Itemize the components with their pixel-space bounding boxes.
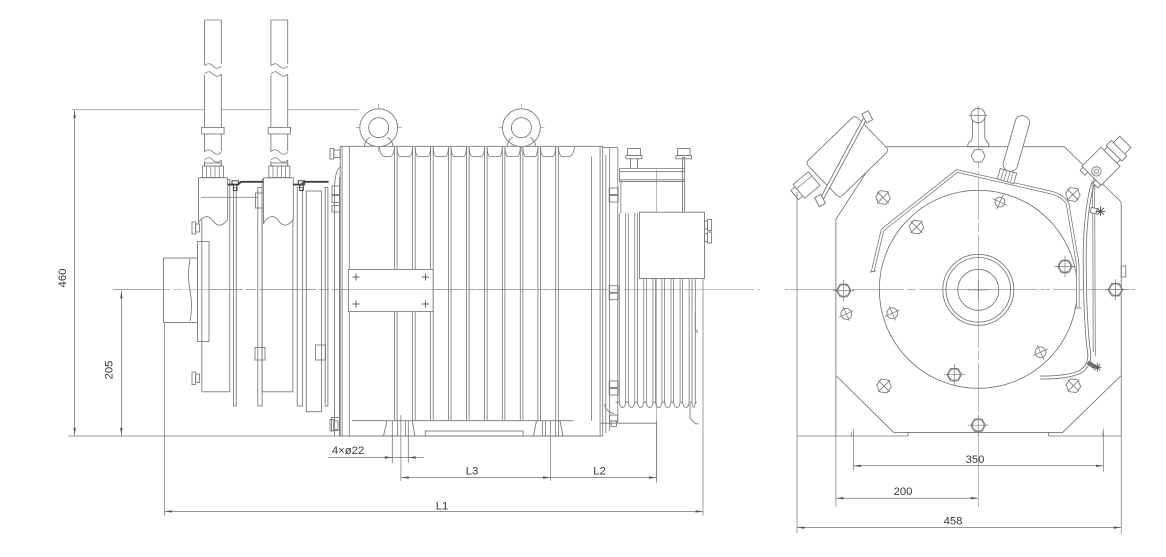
svg-text:200: 200 bbox=[894, 486, 913, 498]
svg-text:L2: L2 bbox=[593, 465, 606, 477]
svg-text:4×ø22: 4×ø22 bbox=[332, 445, 364, 457]
svg-text:350: 350 bbox=[966, 454, 985, 466]
svg-text:458: 458 bbox=[944, 515, 963, 527]
svg-text:L1: L1 bbox=[436, 500, 449, 512]
svg-text:205: 205 bbox=[104, 361, 116, 380]
svg-text:460: 460 bbox=[57, 269, 69, 288]
svg-text:L3: L3 bbox=[466, 465, 479, 477]
